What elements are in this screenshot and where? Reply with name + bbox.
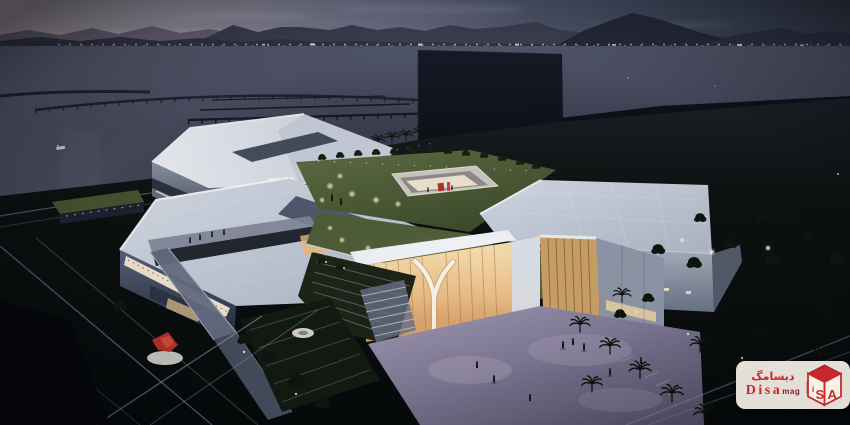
- watermark-latin-suffix: mag: [782, 387, 800, 396]
- night-aerial-rendering: دیسامگ Disamag i S A: [0, 0, 850, 425]
- logo-letter-a: A: [828, 387, 838, 402]
- vignette: [0, 0, 850, 425]
- watermark-latin-name: Disa: [746, 383, 782, 398]
- logo-letter-i: i: [812, 385, 814, 394]
- watermark-persian-name: دیسامگ: [745, 371, 801, 383]
- isa-cube-logo: i S A: [806, 364, 843, 407]
- watermark-badge: دیسامگ Disamag i S A: [736, 361, 850, 409]
- logo-letter-s: S: [816, 387, 825, 402]
- scene-canvas: [0, 0, 850, 425]
- watermark-text: دیسامگ Disamag: [745, 371, 801, 399]
- logo-side-mark: [807, 381, 809, 394]
